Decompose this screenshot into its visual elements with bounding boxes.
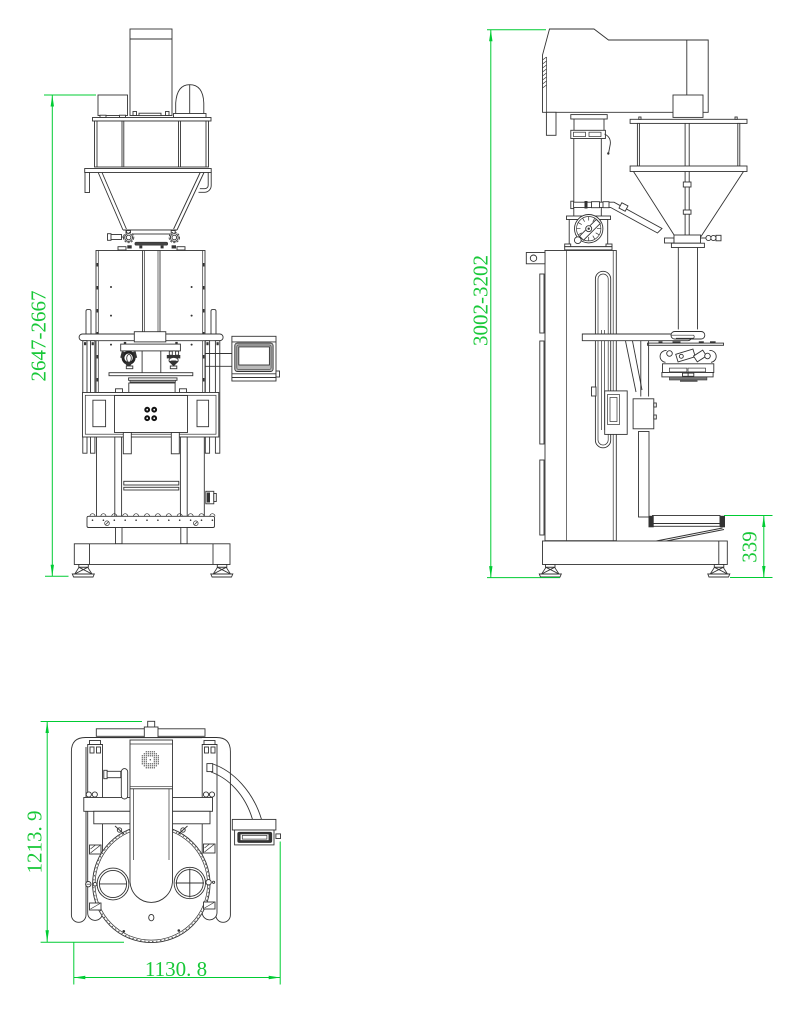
svg-text:339: 339 [737,531,761,563]
svg-text:1213. 9: 1213. 9 [22,811,46,874]
svg-text:3002-3202: 3002-3202 [469,255,493,346]
svg-text:1130. 8: 1130. 8 [145,957,207,981]
svg-text:2647-2667: 2647-2667 [26,291,50,382]
